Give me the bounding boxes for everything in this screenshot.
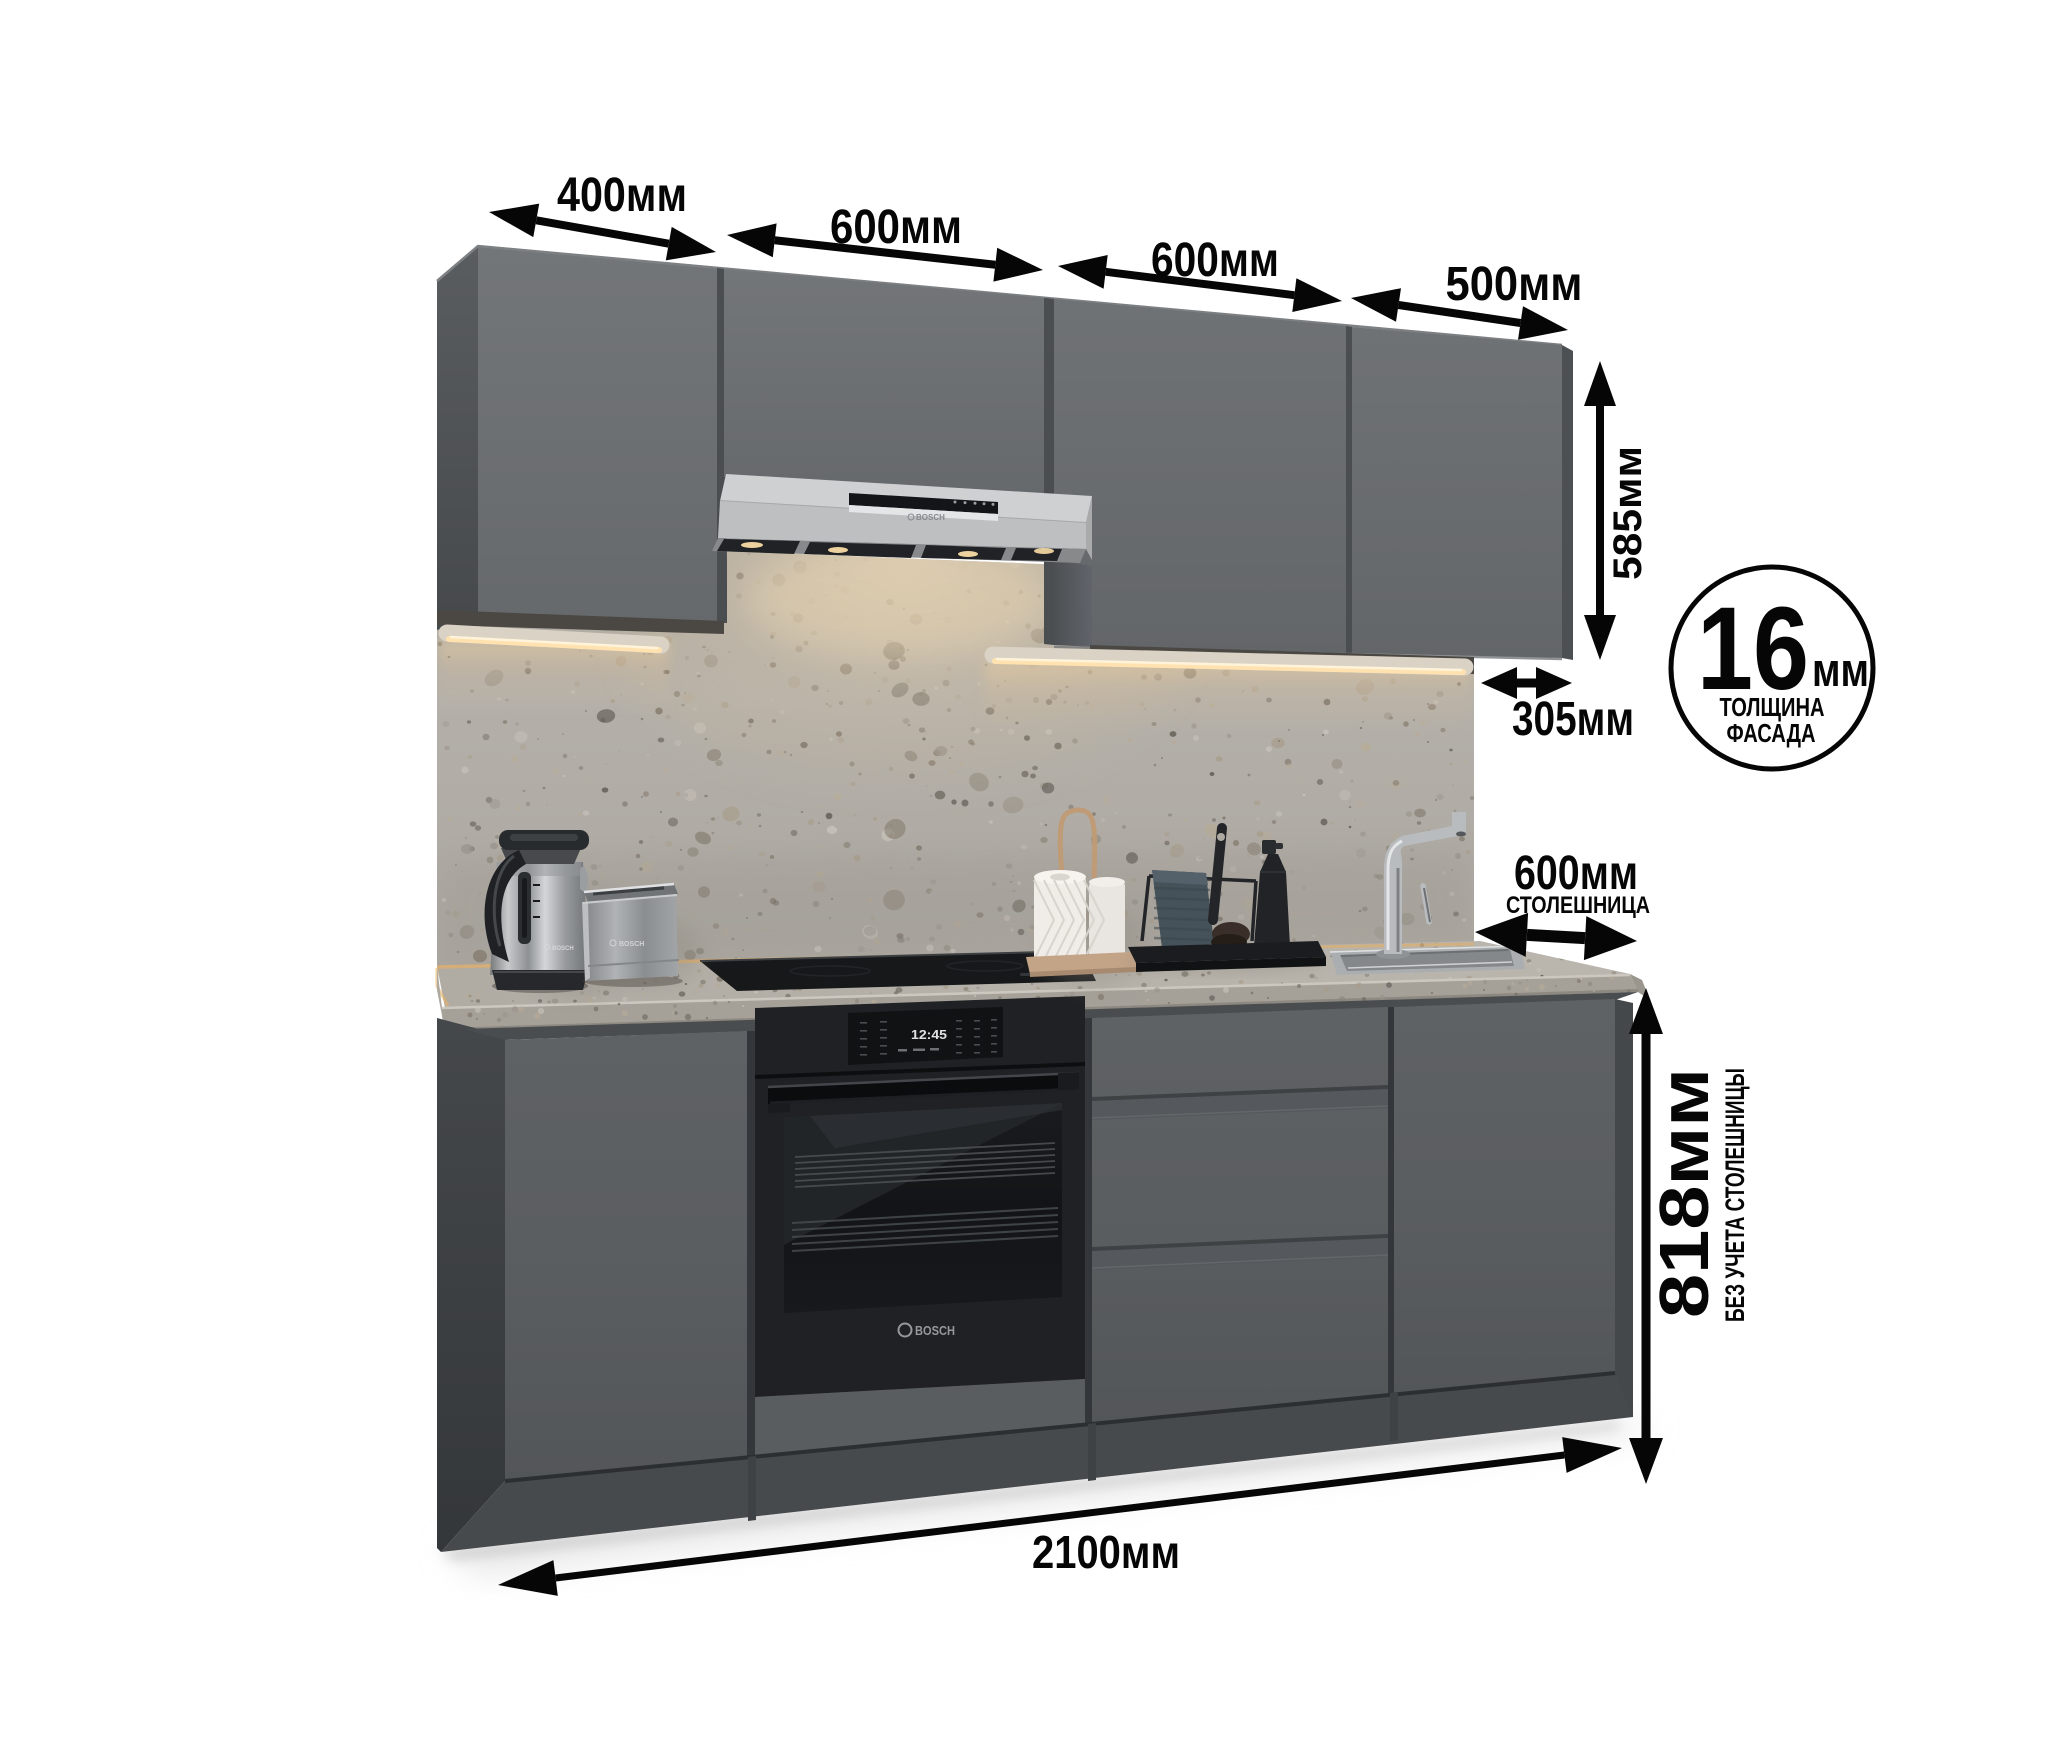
- svg-text:500мм: 500мм: [1446, 258, 1583, 311]
- svg-text:BOSCH: BOSCH: [915, 1323, 955, 1338]
- svg-text:2100мм: 2100мм: [1032, 1526, 1180, 1578]
- svg-text:400мм: 400мм: [557, 169, 687, 222]
- svg-text:BOSCH: BOSCH: [916, 513, 945, 522]
- svg-text:12:45: 12:45: [911, 1027, 947, 1042]
- svg-text:305мм: 305мм: [1512, 693, 1634, 746]
- svg-text:BOSCH: BOSCH: [619, 941, 644, 948]
- svg-text:600мм: 600мм: [1151, 234, 1279, 287]
- svg-text:ФАСАДА: ФАСАДА: [1727, 718, 1816, 748]
- svg-text:585мм: 585мм: [1606, 446, 1650, 580]
- svg-text:818мм: 818мм: [1645, 1068, 1723, 1318]
- svg-text:БЕЗ УЧЕТА СТОЛЕШНИЦЫ: БЕЗ УЧЕТА СТОЛЕШНИЦЫ: [1720, 1068, 1750, 1322]
- svg-text:мм: мм: [1812, 643, 1869, 696]
- svg-text:600мм: 600мм: [830, 201, 962, 254]
- svg-text:BOSCH: BOSCH: [552, 946, 574, 952]
